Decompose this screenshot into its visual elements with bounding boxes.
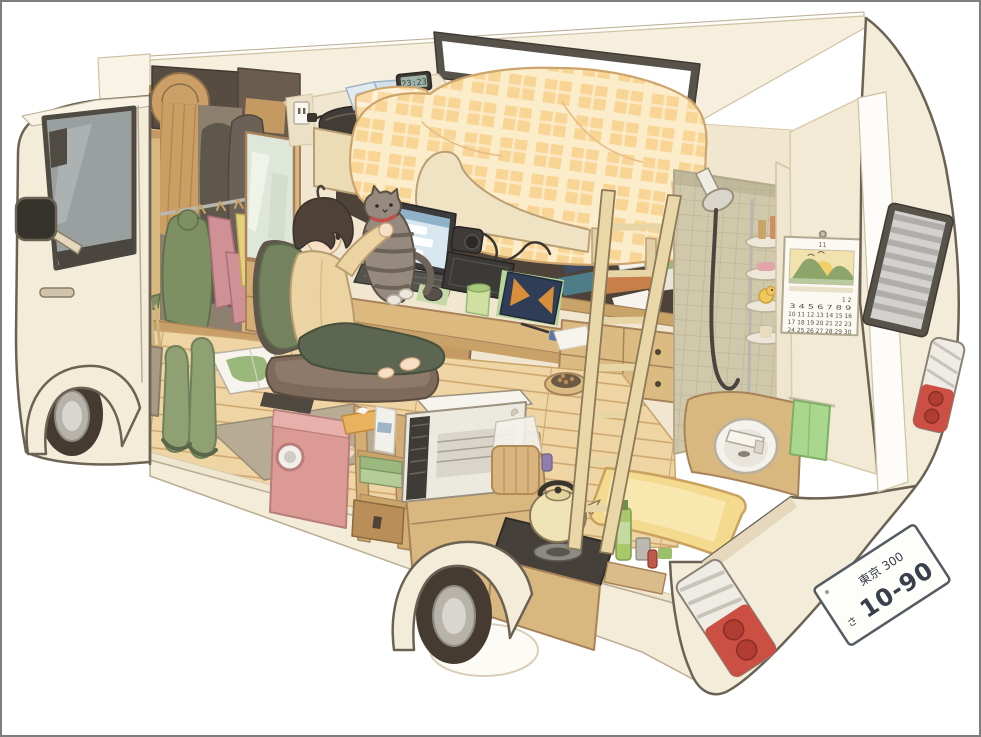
side-mirror	[16, 198, 56, 240]
calendar-picture	[789, 249, 854, 285]
hand	[379, 223, 393, 237]
calendar-row: 1 2	[842, 297, 852, 304]
illustration-frame: Anime-style cutaway illustration of a ca…	[0, 0, 981, 737]
vent-window-small	[49, 128, 67, 168]
calendar-month: 11	[818, 241, 827, 249]
soap-bar	[757, 262, 775, 271]
power-outlet	[294, 102, 309, 124]
cat-paw	[399, 289, 413, 299]
sink-drain	[738, 451, 750, 457]
folded-towels	[360, 456, 402, 488]
sponge	[658, 548, 672, 559]
microwave-vent-panel	[406, 416, 430, 500]
hair	[293, 198, 353, 249]
kettle-knob	[555, 487, 562, 494]
washing-machine	[270, 410, 350, 528]
camper-van-illustration: Anime-style cutaway illustration of a ca…	[2, 2, 979, 735]
green-coat	[163, 214, 212, 332]
notebook	[500, 272, 562, 324]
shampoo-bottle	[758, 220, 766, 239]
wall-calendar: 11 1 2 3 4 5 6 7 8 9 10 11 12 13 14 15 1…	[781, 230, 861, 337]
sink-counter	[685, 392, 802, 496]
storage-case	[352, 500, 404, 544]
red-bottle	[648, 550, 657, 568]
jar	[760, 326, 772, 338]
cat-paw	[387, 295, 401, 305]
pet-food-bowl	[545, 373, 587, 395]
cup	[466, 284, 490, 316]
bread-bag	[492, 409, 542, 494]
carton	[374, 406, 396, 454]
plug	[307, 113, 317, 122]
door-handle	[40, 288, 74, 297]
